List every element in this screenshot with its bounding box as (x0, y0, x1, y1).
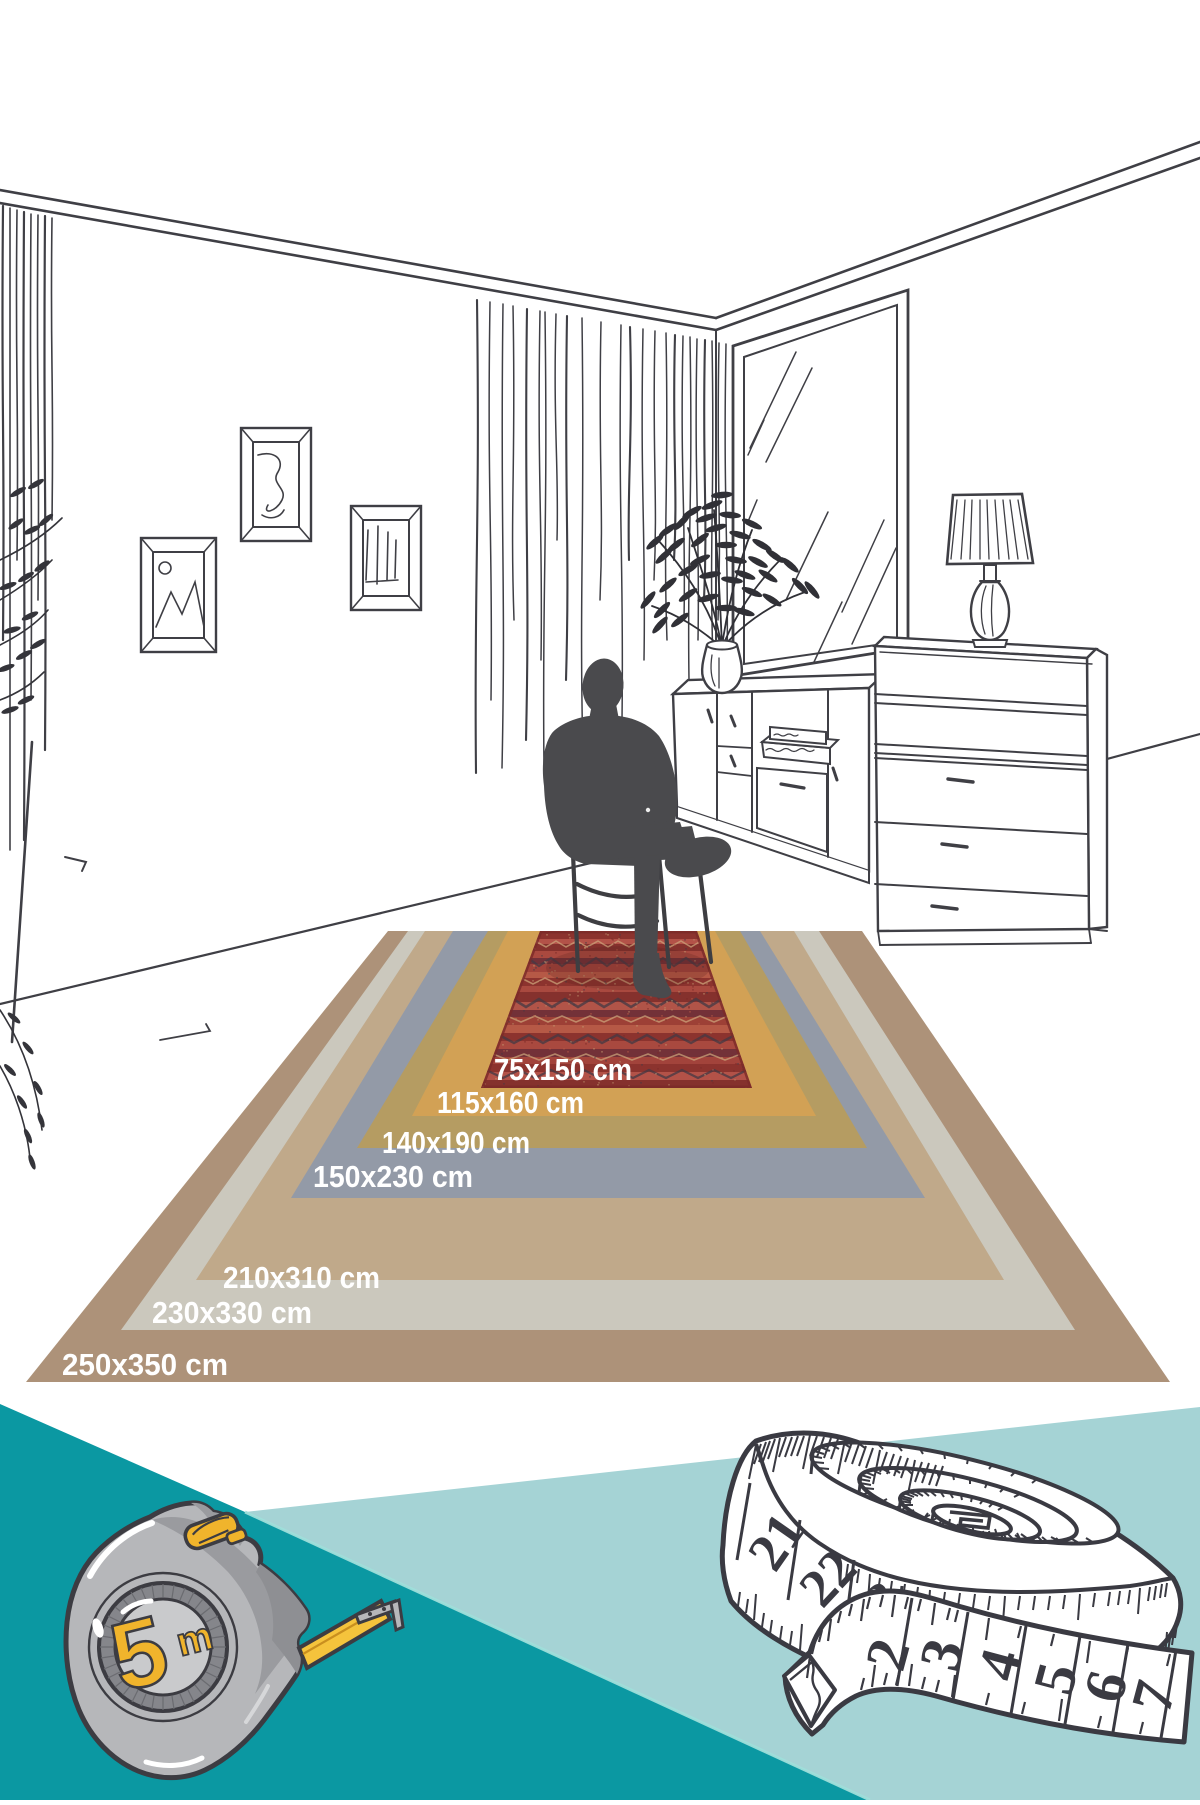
svg-text:115x160 cm: 115x160 cm (437, 1085, 584, 1120)
svg-text:140x190 cm: 140x190 cm (382, 1125, 530, 1160)
svg-text:75x150 cm: 75x150 cm (494, 1052, 632, 1087)
svg-text:230x330 cm: 230x330 cm (152, 1295, 312, 1330)
svg-text:150x230 cm: 150x230 cm (313, 1159, 473, 1194)
svg-text:250x350 cm: 250x350 cm (62, 1347, 228, 1382)
svg-text:210x310 cm: 210x310 cm (223, 1260, 380, 1295)
